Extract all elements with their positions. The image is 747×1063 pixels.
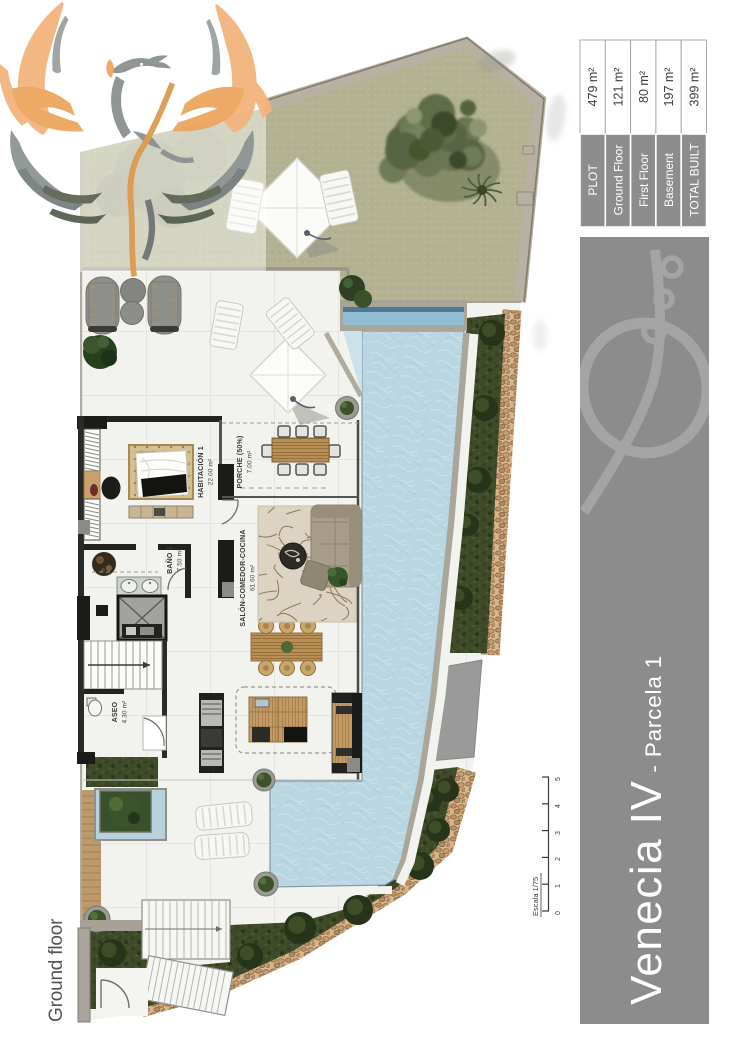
svg-text:HABITACIÓN 1: HABITACIÓN 1 [196,446,205,498]
svg-text:7.50 m²: 7.50 m² [177,549,184,572]
svg-text:479 m²: 479 m² [586,68,600,107]
svg-text:3: 3 [555,831,562,835]
svg-text:First Floor: First Floor [637,153,651,207]
svg-text:5: 5 [555,777,562,781]
svg-text:Ground floor: Ground floor [46,918,67,1022]
svg-text:399 m²: 399 m² [687,68,701,107]
svg-text:Basement: Basement [662,152,676,207]
svg-text:1: 1 [555,884,562,888]
svg-text:0: 0 [555,911,562,915]
svg-text:TOTAL BUILT: TOTAL BUILT [687,143,701,217]
svg-text:61.60 m²: 61.60 m² [250,565,257,591]
svg-text:121 m²: 121 m² [611,68,625,107]
svg-text:ASEO: ASEO [112,701,119,722]
svg-text:BAÑO 1: BAÑO 1 [165,546,174,574]
svg-text:2: 2 [555,857,562,861]
svg-text:22.00 m²: 22.00 m² [208,459,215,485]
svg-text:PLOT: PLOT [586,164,600,196]
svg-text:4: 4 [555,804,562,808]
svg-text:7.00 m²: 7.00 m² [247,451,254,474]
svg-text:SALÓN-COMEDOR-COCINA: SALÓN-COMEDOR-COCINA [238,529,247,626]
svg-text:Escala 1/75: Escala 1/75 [531,877,540,916]
svg-text:Ground Floor: Ground Floor [611,145,625,216]
svg-text:4.30 m²: 4.30 m² [122,701,129,724]
svg-text:80 m²: 80 m² [637,71,651,103]
svg-text:197 m²: 197 m² [662,68,676,107]
svg-text:PORCHE (50%): PORCHE (50%) [237,436,244,489]
